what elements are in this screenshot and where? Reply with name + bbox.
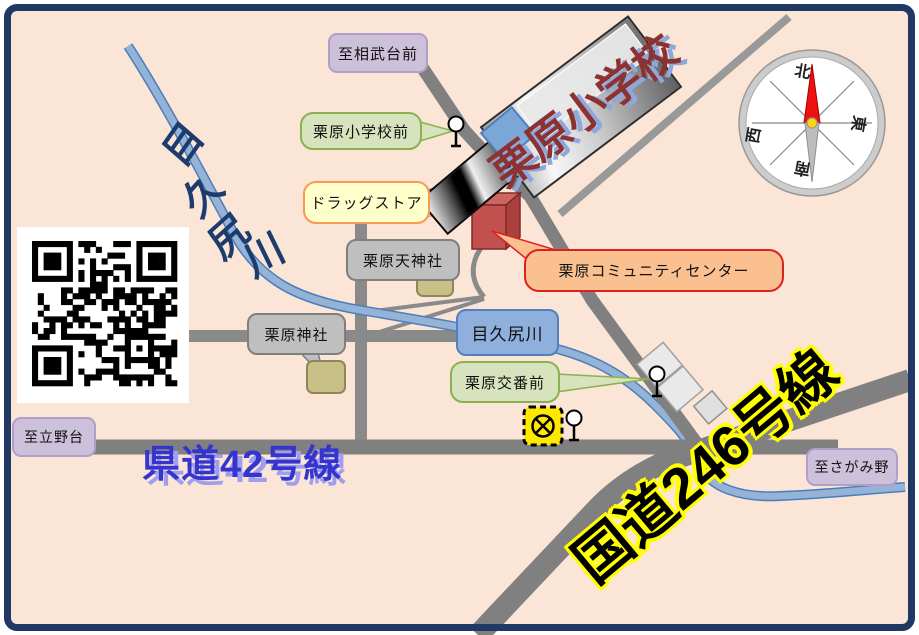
tenjin-shrine-label: 栗原天神社 [346,239,460,281]
river-box-label: 目久尻川 [456,309,559,356]
kurihara-shrine-building [306,360,346,394]
qr-code [17,227,189,403]
bus-stop-label-school: 栗原小学校前 [300,112,422,150]
bus-stop-icon-koban [567,411,582,441]
police-box-icon [524,407,562,445]
destination-sagamino: 至さがみ野 [806,448,898,486]
kurihara-shrine-label: 栗原神社 [247,313,346,355]
bus-stop-label-koban: 栗原交番前 [450,361,560,403]
map-canvas: 栗原小学校 県道42号線 国道246号線 北 東 西 南 至相武台前 栗原小学校… [0,0,919,635]
community-center-label: 栗原コミュニティセンター [524,249,784,292]
compass-pivot [807,118,817,128]
drugstore-label: ドラッグストア [303,181,430,224]
destination-sobudaimae: 至相武台前 [328,33,428,73]
destination-tatenodai: 至立野台 [12,417,96,457]
route42-label: 県道42号線 [142,433,342,488]
